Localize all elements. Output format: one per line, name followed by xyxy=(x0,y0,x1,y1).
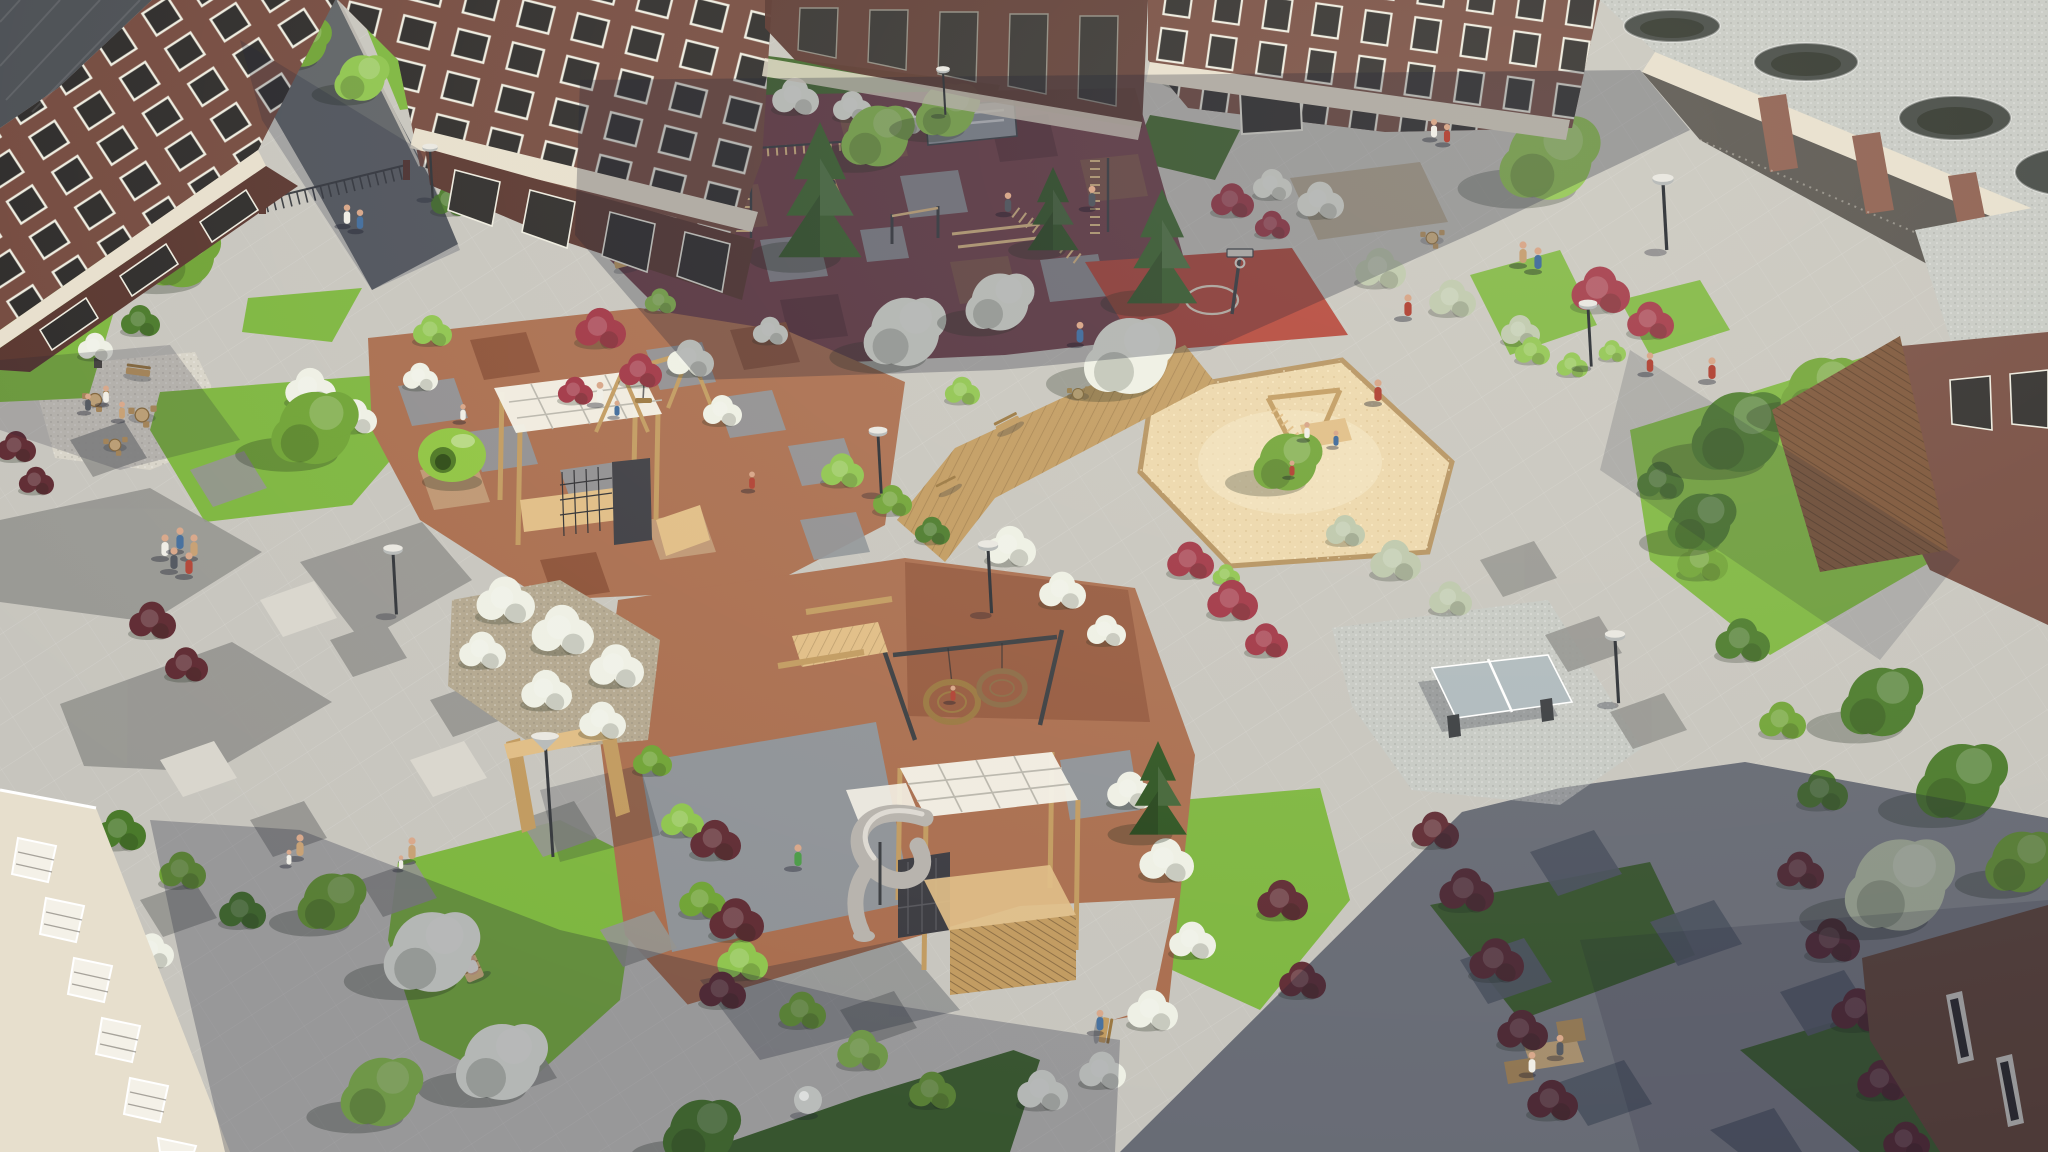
courtyard-aerial-render xyxy=(0,0,2048,1152)
scene-canvas xyxy=(0,0,2048,1152)
